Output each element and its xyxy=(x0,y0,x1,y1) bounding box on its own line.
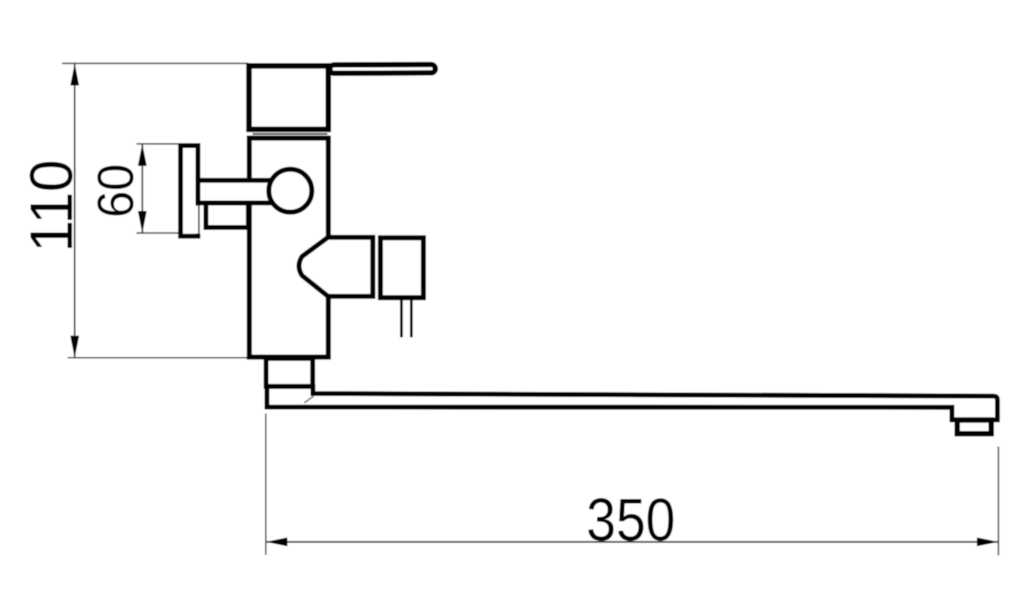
svg-text:60: 60 xyxy=(87,164,144,218)
svg-text:350: 350 xyxy=(586,485,675,553)
svg-text:110: 110 xyxy=(17,160,85,253)
